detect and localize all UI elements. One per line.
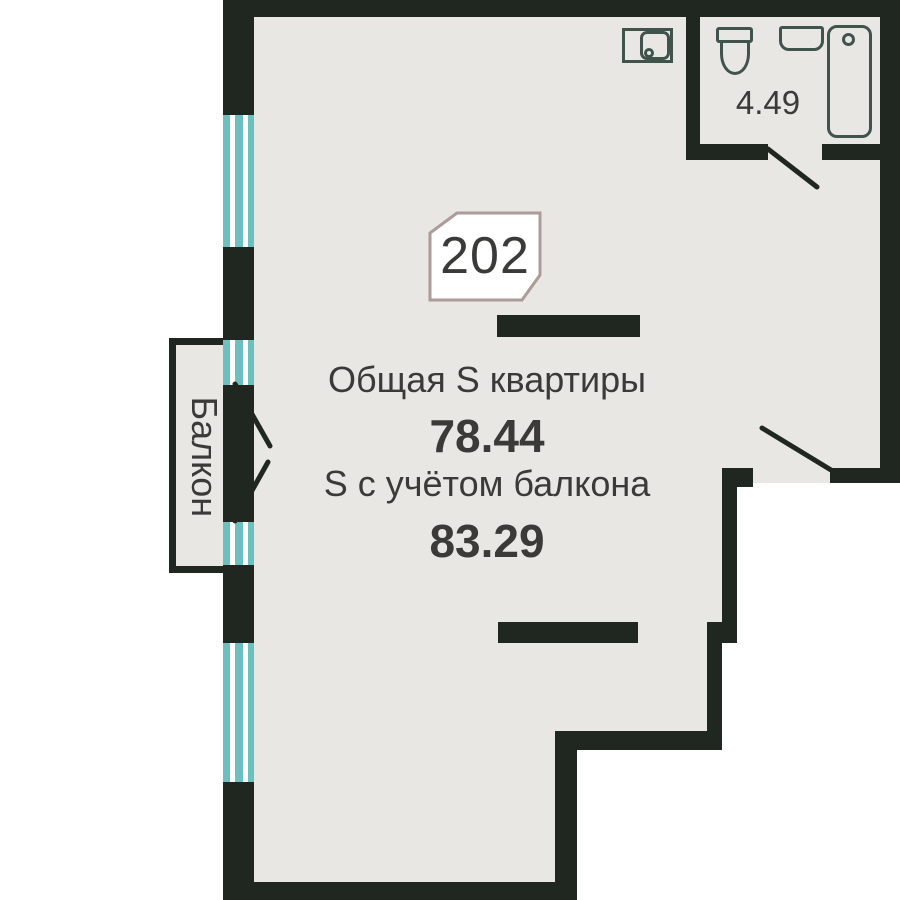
area-with-balcony-value: 83.29 <box>337 516 637 567</box>
kitchen-sink-drain-icon <box>644 48 654 58</box>
bathroom-door-swing <box>768 149 817 187</box>
bathroom-area-value: 4.49 <box>700 85 836 121</box>
balcony-door-swing-top <box>235 384 270 446</box>
area-with-balcony-label: S с учётом балкона <box>287 464 687 504</box>
unit-number-badge: 202 <box>424 207 546 305</box>
washbasin-icon <box>779 26 824 51</box>
entrance-door-swing <box>762 428 831 470</box>
total-area-label: Общая S квартиры <box>287 360 687 400</box>
balcony-door-swing-bottom <box>235 462 268 521</box>
balcony-label: Балкон <box>184 392 224 522</box>
bathtub-drain-icon <box>842 33 855 46</box>
total-area-value: 78.44 <box>337 411 637 462</box>
unit-number: 202 <box>424 207 546 305</box>
floor-plan: 202 Общая S квартиры 78.44 S с учётом ба… <box>0 0 900 900</box>
